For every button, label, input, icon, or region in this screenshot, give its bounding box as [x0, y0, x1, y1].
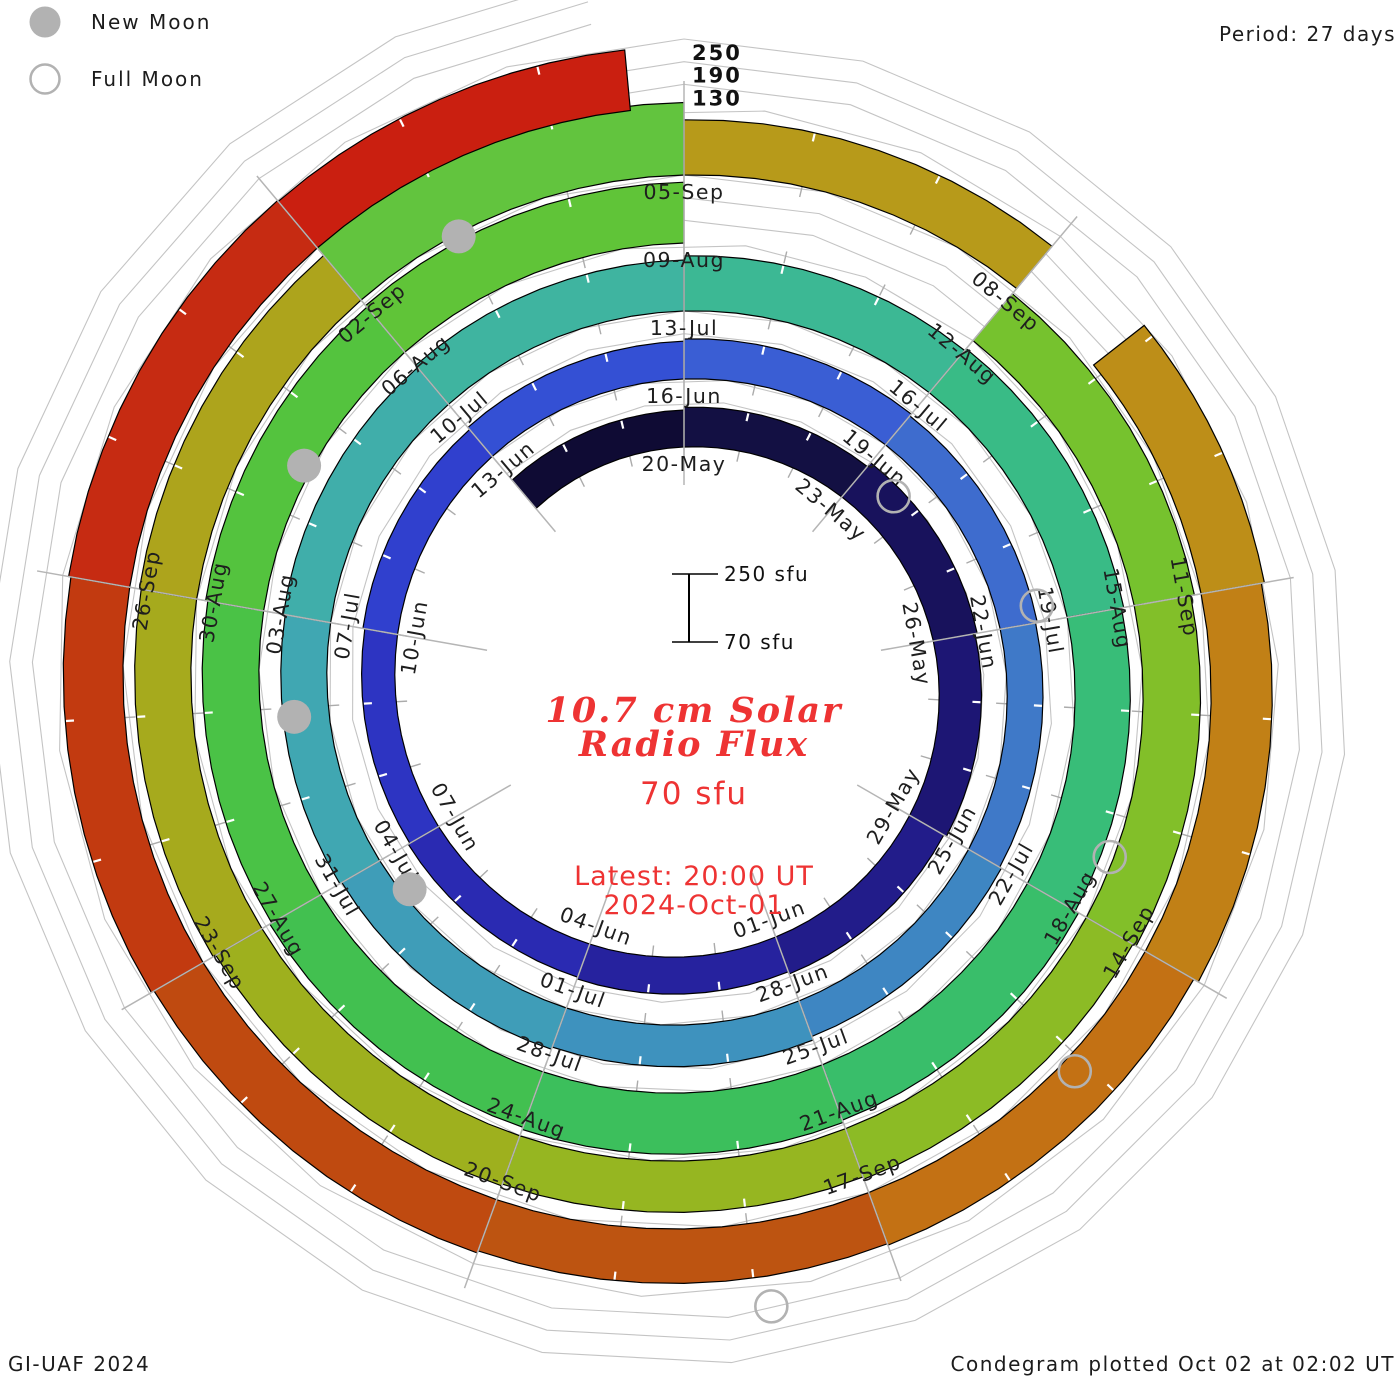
date-label-05-Sep: 05-Sep [643, 180, 724, 204]
scale-bar-bottom-label: 70 sfu [724, 630, 795, 654]
new-moon-marker [393, 872, 427, 906]
day-tick-top [623, 1201, 624, 1209]
full-moon-marker [755, 1290, 787, 1322]
day-tick [784, 251, 787, 263]
day-tick [1051, 795, 1062, 798]
credit-label: GI-UAF 2024 [8, 1352, 150, 1376]
radial-scale-labels: 250190130 [692, 41, 742, 110]
new-moon-marker [277, 700, 311, 734]
day-tick-top [727, 1054, 728, 1062]
plotted-timestamp: Condegram plotted Oct 02 at 02:02 UT [951, 1352, 1395, 1376]
date-label-20-May: 20-May [642, 452, 727, 476]
day-tick [644, 1013, 645, 1025]
center-annotation: 10.7 cm Solar Radio Flux 70 sfu Latest: … [444, 694, 944, 920]
day-tick [395, 701, 407, 702]
day-tick [849, 345, 854, 356]
chart-title-line1: 10.7 cm Solar [444, 694, 944, 728]
scale-bar-top-label: 250 sfu [724, 562, 809, 586]
day-tick-top [719, 982, 720, 990]
day-tick [409, 764, 420, 767]
full-moon-icon [24, 59, 66, 99]
latest-timestamp: Latest: 20:00 UT 2024-Oct-01 [444, 862, 944, 920]
day-tick [518, 354, 523, 365]
date-label-13-Jul: 13-Jul [650, 316, 718, 340]
radial-tick-130: 130 [692, 86, 742, 110]
day-tick [414, 568, 425, 573]
day-tick [929, 496, 939, 503]
day-tick [446, 508, 456, 515]
legend-row-full-moon: Full Moon [24, 59, 211, 99]
day-tick-top [614, 1272, 615, 1280]
day-tick [652, 945, 653, 957]
day-tick [579, 476, 584, 487]
condegram-root: 20-May23-May26-May29-May01-Jun04-Jun07-J… [0, 0, 1400, 1400]
flux-wedges [63, 50, 1272, 1284]
day-tick-top [752, 1269, 753, 1277]
moon-legend: New Moon Full Moon [24, 2, 211, 116]
chart-title-line2: Radio Flux [444, 728, 944, 762]
day-tick-top [744, 1199, 745, 1207]
day-tick [904, 585, 915, 590]
day-tick [344, 783, 355, 786]
day-tick [737, 450, 740, 462]
day-tick-top [737, 1141, 738, 1149]
new-moon-marker [442, 219, 476, 253]
flux-wedge-28-Jun [552, 1001, 813, 1067]
day-tick [714, 943, 715, 955]
new-moon-marker [287, 449, 321, 483]
full-moon-label: Full Moon [91, 67, 204, 91]
latest-flux-value: 70 sfu [444, 776, 944, 812]
day-tick [753, 384, 756, 396]
day-tick [614, 389, 617, 401]
day-tick [861, 955, 868, 965]
legend-row-new-moon: New Moon [24, 2, 211, 42]
radial-tick-250: 250 [692, 41, 742, 65]
date-label-09-Aug: 09-Aug [643, 248, 725, 272]
new-moon-icon [24, 2, 66, 42]
date-label-16-Jun: 16-Jun [646, 384, 722, 408]
day-tick-top [648, 984, 649, 992]
day-tick [874, 536, 884, 543]
day-tick [629, 455, 632, 467]
latest-date-line: 2024-Oct-01 [444, 891, 944, 920]
flux-wedge-25-Jul [522, 1065, 843, 1154]
new-moon-label: New Moon [91, 10, 211, 34]
scale-bar: 250 sfu70 sfu [672, 562, 809, 654]
day-tick [788, 467, 793, 478]
latest-time-line: Latest: 20:00 UT [444, 862, 944, 891]
day-tick-top [629, 1143, 630, 1151]
day-tick [722, 1011, 723, 1023]
period-label: Period: 27 days [1219, 22, 1396, 46]
radial-tick-190: 190 [692, 64, 742, 88]
day-tick [996, 703, 1008, 704]
day-tick-top [640, 1056, 641, 1064]
